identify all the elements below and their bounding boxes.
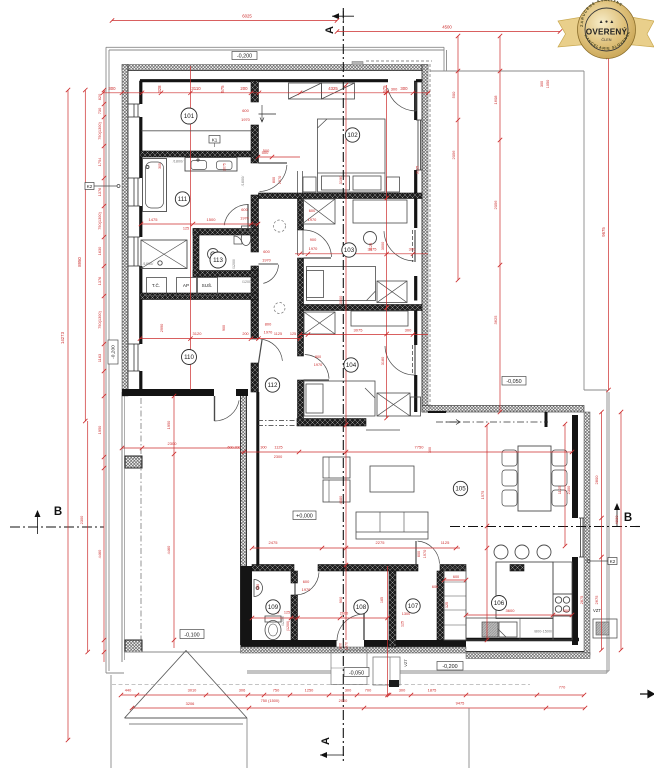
svg-text:103: 103 [344,247,355,254]
svg-text:K2: K2 [610,559,616,564]
svg-text:4460: 4460 [97,549,102,558]
svg-text:112: 112 [268,382,278,389]
svg-text:3000: 3000 [381,242,385,250]
svg-text:750(1300): 750(1300) [97,310,102,328]
svg-text:+0,000: +0,000 [296,514,313,520]
svg-text:A: A [324,26,336,34]
svg-text:101: 101 [184,113,195,120]
svg-text:750: 750 [273,688,280,693]
svg-text:/1800/: /1800/ [143,262,155,266]
svg-text:125: 125 [284,611,290,615]
svg-text:/1600/: /1600/ [241,175,245,187]
svg-text:125: 125 [290,332,296,336]
svg-text:4680: 4680 [338,495,343,504]
svg-text:1376: 1376 [97,188,102,197]
svg-text:1163: 1163 [97,354,102,362]
svg-text:1875: 1875 [428,688,437,693]
svg-text:1970: 1970 [314,363,322,367]
svg-text:109: 109 [268,604,279,611]
svg-text:113: 113 [213,257,223,264]
svg-text:8950: 8950 [77,257,82,267]
svg-text:1376: 1376 [97,277,102,286]
svg-text:300: 300 [400,86,408,91]
svg-text:4460: 4460 [166,545,171,554]
svg-text:AP: AP [183,283,189,288]
svg-text:1300: 1300 [402,612,410,616]
svg-text:200: 200 [240,86,248,91]
svg-text:900: 900 [310,237,317,242]
svg-text:1970: 1970 [345,642,349,650]
svg-text:107: 107 [408,603,419,610]
svg-text:2675: 2675 [594,595,599,605]
svg-text:/1200/: /1200/ [232,259,236,269]
svg-text:/1800/: /1800/ [173,160,185,164]
svg-text:K1: K1 [212,137,218,142]
svg-text:1250: 1250 [305,688,314,693]
svg-text:3180: 3180 [381,357,385,365]
svg-text:2300: 2300 [79,515,84,524]
svg-text:600: 600 [432,585,438,589]
svg-text:B: B [54,506,62,518]
svg-text:▲ ● ▲: ▲ ● ▲ [599,19,615,25]
svg-text:3010: 3010 [188,688,197,693]
svg-text:600: 600 [309,208,316,213]
svg-text:300: 300 [108,86,116,91]
svg-text:9475: 9475 [456,701,465,706]
svg-text:1970: 1970 [262,258,271,263]
svg-text:600 200: 600 200 [228,446,241,450]
svg-text:900: 900 [339,643,343,649]
svg-text:108: 108 [356,604,367,611]
svg-text:750(1300): 750(1300) [97,211,102,229]
svg-text:300: 300 [399,688,406,693]
svg-text:1575: 1575 [480,491,485,500]
svg-text:2990: 2990 [160,324,164,332]
svg-text:1970: 1970 [241,117,250,122]
svg-text:800: 800 [272,177,276,183]
svg-text:125: 125 [401,621,405,627]
svg-text:3110: 3110 [191,86,201,91]
svg-text:600: 600 [303,579,310,584]
svg-text:1050: 1050 [546,80,550,88]
svg-text:A: A [320,737,332,745]
svg-text:125: 125 [445,602,449,608]
svg-text:900: 900 [338,596,343,603]
svg-text:730: 730 [97,107,102,114]
svg-text:3600: 3600 [506,608,516,613]
svg-text:1970: 1970 [302,587,311,592]
svg-text:125: 125 [183,227,189,231]
svg-text:7750: 7750 [415,445,425,450]
svg-text:102: 102 [347,132,358,139]
svg-text:1970: 1970 [264,330,273,335]
svg-text:300: 300 [260,446,266,450]
svg-text:600: 600 [417,551,421,557]
svg-text:2300: 2300 [274,455,282,459]
svg-text:-0,200: -0,200 [237,54,252,60]
svg-text:3625: 3625 [493,315,498,325]
svg-text:800: 800 [315,355,321,359]
svg-text:1970: 1970 [240,216,249,221]
svg-text:3125: 3125 [369,243,373,251]
svg-text:9675: 9675 [601,227,606,237]
svg-text:1125: 1125 [557,486,562,494]
svg-text:111: 111 [178,196,188,203]
svg-text:-0,200: -0,200 [111,345,117,359]
svg-text:820: 820 [97,93,102,100]
svg-text:1970: 1970 [423,550,427,558]
svg-text:4500: 4500 [442,25,452,30]
svg-text:300: 300 [540,81,544,87]
svg-text:/1200/: /1200/ [242,280,252,284]
svg-text:800: 800 [265,322,272,327]
svg-text:3075: 3075 [354,328,364,333]
svg-text:ČLEN: ČLEN [601,37,611,42]
svg-text:3000: 3000 [338,295,343,304]
svg-text:-0,050: -0,050 [349,671,364,677]
svg-text:2275: 2275 [376,540,386,545]
svg-text:2000: 2000 [339,698,348,703]
svg-text:110: 110 [184,354,194,361]
svg-text:575: 575 [220,85,225,93]
svg-text:-0,200: -0,200 [442,664,457,670]
svg-text:104: 104 [346,362,357,369]
svg-text:300: 300 [405,328,412,333]
svg-text:300: 300 [409,247,416,252]
svg-text:2800: 2800 [594,475,599,485]
svg-text:770: 770 [559,685,566,690]
svg-text:-0,050: -0,050 [506,379,521,385]
svg-text:1754: 1754 [97,157,102,166]
svg-text:105: 105 [455,486,466,493]
svg-text:106: 106 [494,600,505,607]
svg-text:328: 328 [157,85,162,93]
svg-text:165: 165 [380,597,384,603]
svg-text:300: 300 [563,608,570,613]
svg-text:K2: K2 [87,184,93,189]
svg-text:T.Č.: T.Č. [152,282,160,288]
svg-text:1125: 1125 [274,446,282,450]
svg-text:/1200/: /1200/ [281,616,285,626]
svg-text:600: 600 [263,249,270,254]
svg-text:305: 305 [158,163,162,169]
svg-text:300: 300 [345,688,352,693]
svg-text:2475: 2475 [269,540,279,545]
svg-text:1125: 1125 [441,540,450,545]
svg-text:306: 306 [239,688,246,693]
svg-text:600: 600 [241,207,248,212]
svg-text:1970: 1970 [278,176,282,184]
svg-text:1970: 1970 [309,246,318,251]
svg-text:2300: 2300 [566,485,571,494]
svg-text:1950: 1950 [97,425,102,434]
svg-text:440: 440 [125,688,132,693]
svg-text:SUŠ.: SUŠ. [202,282,213,288]
svg-text:VZT: VZT [593,608,601,613]
svg-text:700: 700 [365,688,372,693]
svg-text:1970: 1970 [308,217,317,222]
svg-text:200: 200 [242,332,248,336]
svg-text:750(1300): 750(1300) [97,121,102,139]
svg-text:2075: 2075 [223,163,227,171]
svg-text:OVERENÝ: OVERENÝ [586,26,628,37]
svg-text:1475: 1475 [149,217,159,222]
svg-text:500: 500 [263,148,270,153]
svg-text:1950: 1950 [166,420,171,429]
svg-text:500: 500 [451,91,456,98]
svg-text:(1200): (1200) [286,621,290,631]
svg-text:2300: 2300 [168,441,178,446]
svg-text:2600: 2600 [340,612,348,616]
svg-text:600: 600 [242,108,249,113]
svg-text:3206: 3206 [186,701,195,706]
svg-text:14273: 14273 [60,331,65,344]
svg-text:300: 300 [391,87,398,92]
svg-text:4325: 4325 [328,86,338,91]
svg-text:750 (1500): 750 (1500) [261,698,281,703]
svg-text:2875: 2875 [580,596,584,604]
svg-text:1630: 1630 [97,246,102,255]
svg-text:1608: 1608 [493,95,498,105]
svg-text:/800-1500/: /800-1500/ [534,630,553,634]
svg-text:3190: 3190 [338,175,343,184]
svg-text:6025: 6025 [242,14,252,19]
svg-text:1500: 1500 [207,217,217,222]
svg-text:2056: 2056 [451,150,456,160]
svg-text:2056: 2056 [493,200,498,210]
svg-text:400: 400 [256,584,260,590]
svg-text:-0,100: -0,100 [184,633,199,639]
svg-text:4830: 4830 [614,515,619,525]
svg-text:3125: 3125 [416,166,420,174]
svg-text:B: B [624,512,632,524]
svg-text:3120: 3120 [193,331,203,336]
svg-text:900: 900 [222,325,226,331]
svg-text:600: 600 [453,575,459,579]
svg-text:1125: 1125 [274,332,282,336]
svg-text:VZT: VZT [403,659,408,667]
